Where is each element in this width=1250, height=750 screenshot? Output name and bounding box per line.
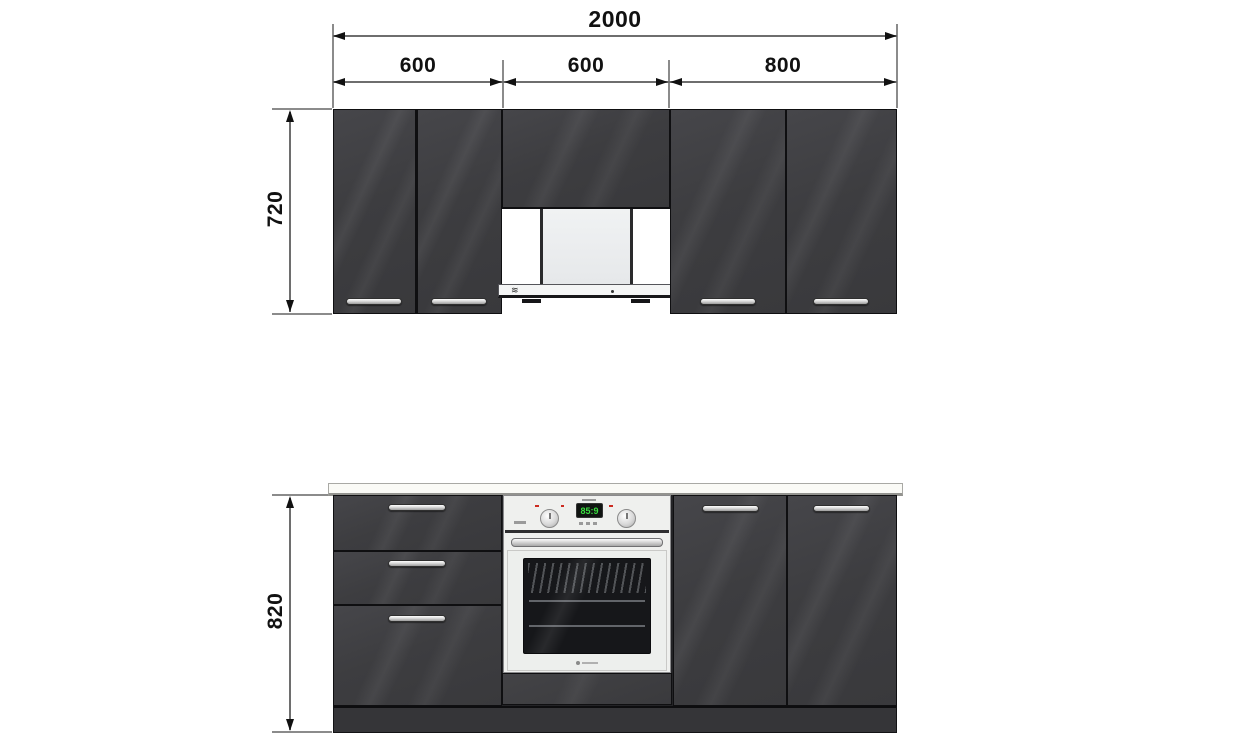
extractor-chimney-duct: [540, 209, 633, 284]
cabinet-door: [787, 110, 896, 313]
drawer-front: [334, 552, 501, 604]
wall-cabinet-left: [333, 109, 502, 314]
door-handle: [700, 298, 756, 305]
oven-button: [579, 522, 583, 525]
drawer-handle: [388, 504, 446, 511]
logo-dot: [576, 661, 580, 665]
cabinet-door: [788, 496, 896, 705]
arrowhead: [656, 78, 668, 86]
under-oven-panel: [502, 673, 672, 705]
dimension-label-upper-height: 720: [264, 181, 288, 237]
extension-line-upper-bottom: [272, 313, 332, 315]
arrowhead: [884, 78, 896, 86]
cabinet-door: [334, 110, 415, 313]
extractor-hood: ≋: [498, 284, 671, 298]
arrowhead: [670, 78, 682, 86]
logo-bar: [582, 662, 598, 664]
dimension-label-base-height: 820: [264, 583, 288, 639]
oven-door: [507, 550, 667, 671]
drawer-front: [334, 496, 501, 550]
cabinet-door: [418, 110, 501, 313]
dimension-line-upper-height: [289, 112, 291, 312]
hood-light-left: [522, 299, 541, 303]
base-cabinet-right: [673, 495, 897, 706]
dimension-label-segment-left: 600: [358, 54, 478, 78]
dimension-label-segment-right: 800: [723, 54, 843, 78]
oven-button: [593, 522, 597, 525]
oven-knob-left: [540, 509, 559, 528]
dimension-line-segments: [333, 81, 897, 83]
arrowhead: [286, 496, 294, 508]
dimension-label-total-width: 2000: [545, 7, 685, 31]
hood-cabinet: [502, 109, 670, 209]
extension-line-base-top: [272, 494, 332, 496]
kitchen-dimension-diagram: 2000 600 600 800 720 820 ≋: [0, 0, 1250, 750]
extension-line-base-bottom: [272, 731, 332, 733]
door-handle: [346, 298, 402, 305]
extension-line-upper-top: [272, 108, 332, 110]
arrowhead: [885, 32, 897, 40]
base-drawer-cabinet: [333, 495, 502, 706]
oven-model-mark: [514, 521, 526, 524]
cabinet-door: [674, 496, 786, 705]
oven-indicator: [561, 505, 564, 507]
door-handle: [813, 505, 870, 512]
drawer-handle: [388, 560, 446, 567]
hood-control-icon: ≋: [511, 286, 519, 295]
oven-indicator: [609, 505, 613, 507]
glass-reflection: [528, 563, 646, 593]
oven-rack: [529, 625, 645, 627]
arrowhead: [333, 32, 345, 40]
door-handle: [431, 298, 487, 305]
built-in-oven: 85:9: [503, 495, 671, 673]
arrowhead: [286, 719, 294, 731]
oven-display: 85:9: [576, 503, 603, 518]
drawer-handle: [388, 615, 446, 622]
hood-light-right: [631, 299, 650, 303]
arrowhead: [286, 110, 294, 122]
oven-panel-groove: [505, 530, 669, 533]
arrowhead: [286, 300, 294, 312]
plinth: [333, 706, 897, 733]
cabinet-door: [671, 110, 785, 313]
dimension-line-total: [333, 35, 897, 37]
cabinet-door: [503, 110, 669, 207]
dimension-line-base-height: [289, 498, 291, 730]
arrowhead: [504, 78, 516, 86]
oven-knob-right: [617, 509, 636, 528]
arrowhead: [490, 78, 502, 86]
oven-button: [586, 522, 590, 525]
arrowhead: [333, 78, 345, 86]
wall-cabinet-right: [670, 109, 897, 314]
dimension-label-segment-middle: 600: [526, 54, 646, 78]
oven-display-label: [582, 499, 596, 501]
door-handle: [702, 505, 759, 512]
drawer-front: [334, 606, 501, 705]
hood-lamp-dot: [611, 290, 614, 293]
oven-door-handle: [511, 538, 663, 547]
oven-indicator: [535, 505, 539, 507]
door-handle: [813, 298, 869, 305]
oven-rack: [529, 600, 645, 602]
oven-brand-logo: [576, 661, 598, 665]
oven-door-glass: [523, 558, 651, 654]
